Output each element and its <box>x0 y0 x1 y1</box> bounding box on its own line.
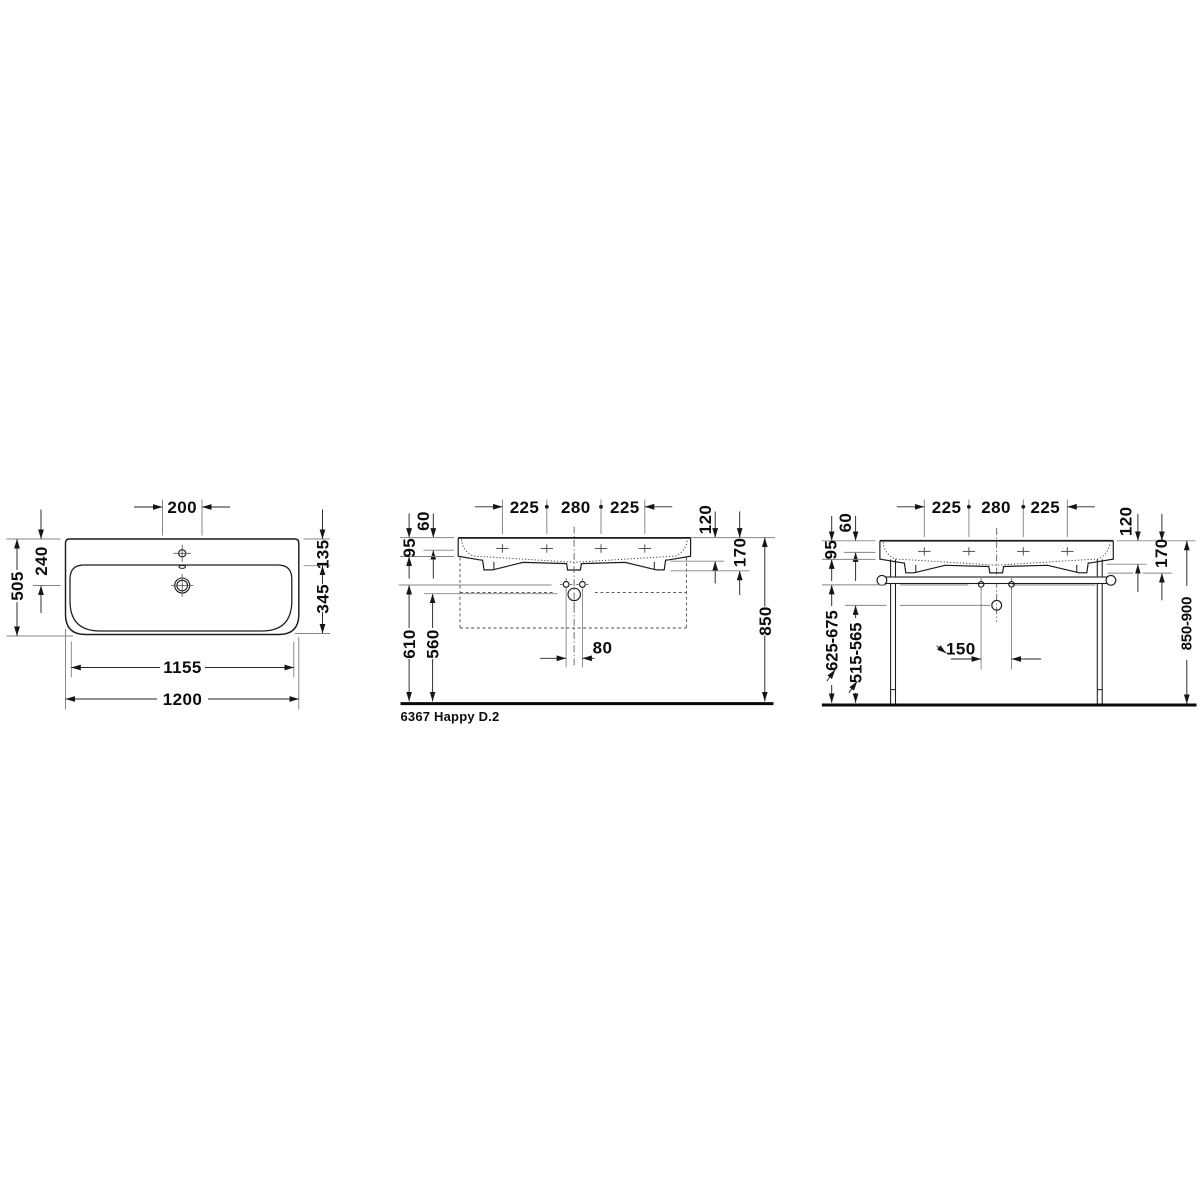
svg-text:120: 120 <box>1117 507 1136 537</box>
svg-text:280: 280 <box>561 498 591 517</box>
svg-text:60: 60 <box>414 511 433 531</box>
svg-text:6367 Happy D.2: 6367 Happy D.2 <box>401 709 500 724</box>
svg-text:95: 95 <box>400 538 419 558</box>
svg-text:610: 610 <box>400 629 419 659</box>
svg-text:225: 225 <box>932 498 962 517</box>
svg-text:95: 95 <box>821 540 840 560</box>
svg-text:280: 280 <box>981 498 1011 517</box>
svg-text:60: 60 <box>836 513 855 533</box>
svg-text:1155: 1155 <box>163 658 201 677</box>
svg-text:225: 225 <box>1031 498 1061 517</box>
svg-text:240: 240 <box>32 546 51 576</box>
svg-text:225: 225 <box>510 498 540 517</box>
svg-text:135: 135 <box>314 540 333 570</box>
svg-text:345: 345 <box>314 584 333 614</box>
svg-text:505: 505 <box>8 571 27 601</box>
svg-text:225: 225 <box>610 498 640 517</box>
svg-text:1200: 1200 <box>163 690 202 709</box>
svg-text:850: 850 <box>756 606 775 636</box>
svg-text:850-900: 850-900 <box>1179 597 1196 651</box>
svg-text:80: 80 <box>593 639 613 658</box>
svg-text:120: 120 <box>696 505 715 535</box>
svg-text:150: 150 <box>946 640 976 659</box>
svg-text:625-675: 625-675 <box>824 610 842 671</box>
svg-text:515-565: 515-565 <box>848 623 866 684</box>
svg-text:200: 200 <box>167 498 197 517</box>
svg-text:170: 170 <box>1152 538 1171 568</box>
svg-text:560: 560 <box>424 629 443 659</box>
svg-text:170: 170 <box>731 538 750 568</box>
